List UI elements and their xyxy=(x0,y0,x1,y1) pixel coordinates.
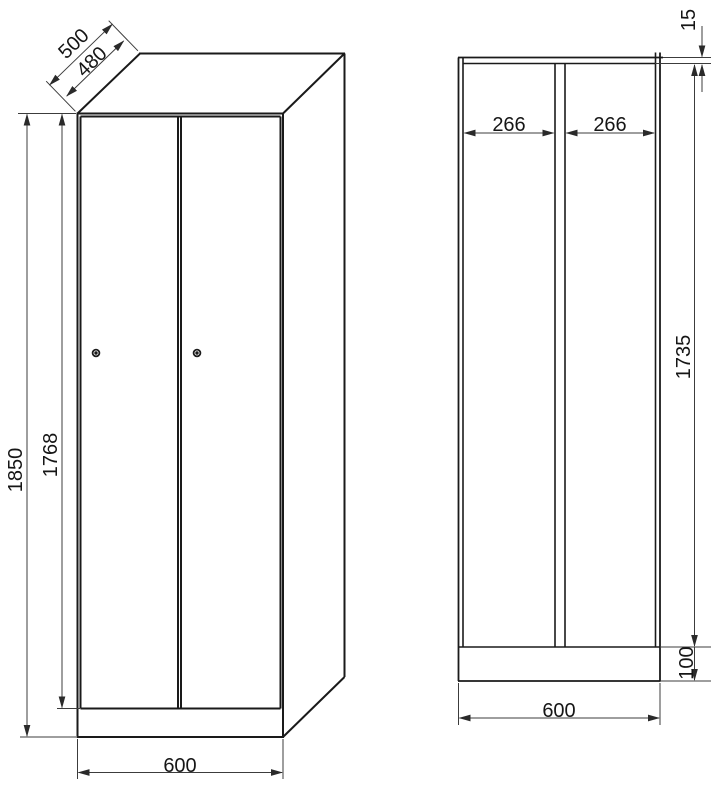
dim-front-width: 600 xyxy=(163,755,196,777)
dim-section-width: 600 xyxy=(542,700,575,722)
dim-total-height: 1850 xyxy=(5,448,27,493)
doors xyxy=(81,117,281,709)
front-view-dimension-labels: 1850 1768 600 500 480 xyxy=(5,24,197,777)
cabinet-oblique-faces xyxy=(78,54,346,738)
locker-dimension-drawing: 1850 1768 600 500 480 xyxy=(0,0,720,792)
dim-door-height: 1768 xyxy=(40,433,62,478)
dim-plinth-height: 100 xyxy=(676,646,698,679)
dim-interior-height: 1735 xyxy=(673,335,695,380)
front-view xyxy=(77,54,346,738)
section-view-dimension-labels: 266 266 15 1735 100 600 xyxy=(492,9,700,722)
front-view-dimensions xyxy=(18,21,283,779)
section-outline xyxy=(458,53,663,682)
dim-compartment-left: 266 xyxy=(492,114,525,136)
door-lock-left xyxy=(93,350,100,357)
dim-top-panel: 15 xyxy=(678,9,700,31)
dim-compartment-right: 266 xyxy=(593,114,626,136)
door-lock-right xyxy=(194,350,201,357)
section-view xyxy=(458,53,663,682)
drawing-svg: 1850 1768 600 500 480 xyxy=(0,0,720,792)
section-walls xyxy=(459,53,661,648)
center-partition xyxy=(555,64,565,648)
